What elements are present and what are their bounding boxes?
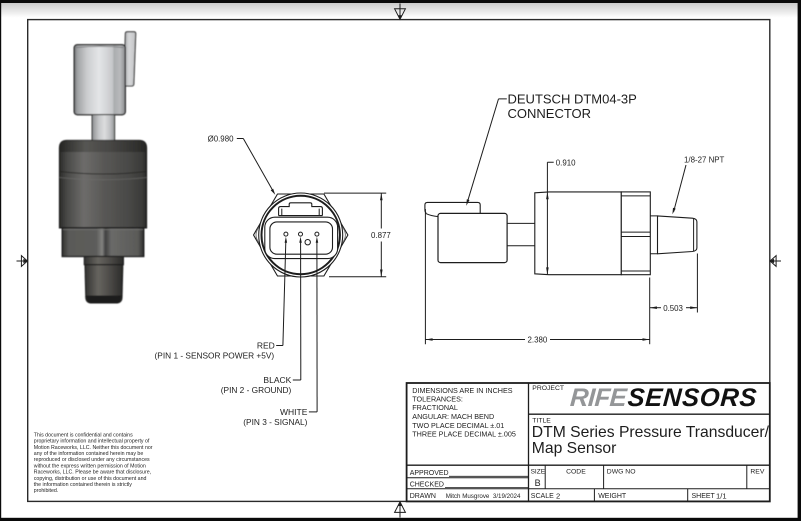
svg-text:1/1: 1/1 xyxy=(716,491,727,500)
svg-text:(PIN 3 - SIGNAL): (PIN 3 - SIGNAL) xyxy=(243,417,307,427)
svg-text:2.380: 2.380 xyxy=(528,336,548,345)
svg-text:0.910: 0.910 xyxy=(556,158,576,167)
svg-text:Map Sensor: Map Sensor xyxy=(532,440,617,457)
svg-text:DEUTSCH DTM04-3P: DEUTSCH DTM04-3P xyxy=(508,92,637,107)
svg-text:RIFE: RIFE xyxy=(569,384,628,412)
svg-text:DRAWN: DRAWN xyxy=(410,493,436,500)
svg-text:REV: REV xyxy=(750,469,764,476)
svg-text:reproduced or disclosed under: reproduced or disclosed under any circum… xyxy=(34,457,150,463)
svg-text:SCALE: SCALE xyxy=(531,493,554,500)
svg-text:WHITE: WHITE xyxy=(280,407,308,417)
svg-text:SENSORS: SENSORS xyxy=(627,384,758,412)
svg-text:BLACK: BLACK xyxy=(263,375,291,385)
svg-text:SIZE: SIZE xyxy=(531,469,546,476)
svg-text:Motion Raceworks, LLC. Neither: Motion Raceworks, LLC. Neither this docu… xyxy=(34,445,153,451)
svg-text:DTM Series Pressure Transducer: DTM Series Pressure Transducer/ xyxy=(532,424,770,441)
svg-text:PROJECT: PROJECT xyxy=(532,385,564,392)
svg-text:ANGULAR: MACH BEND: ANGULAR: MACH BEND xyxy=(412,412,494,421)
svg-text:CHECKED: CHECKED xyxy=(410,481,444,488)
svg-text:CONNECTOR: CONNECTOR xyxy=(508,106,592,121)
svg-text:3/19/2024: 3/19/2024 xyxy=(493,493,521,500)
svg-text:Mitch Musgrove: Mitch Musgrove xyxy=(446,493,490,500)
svg-text:the information contained ther: the information contained therein is str… xyxy=(34,482,132,488)
svg-text:without the express written pe: without the express written permission o… xyxy=(34,463,146,469)
svg-text:SHEET: SHEET xyxy=(692,493,716,500)
svg-text:prohibited.: prohibited. xyxy=(34,488,59,494)
svg-text:0.877: 0.877 xyxy=(371,231,391,240)
svg-text:FRACTIONAL: FRACTIONAL xyxy=(412,403,458,412)
svg-text:2: 2 xyxy=(556,491,560,500)
svg-text:copying, distribution or use o: copying, distribution or use of this doc… xyxy=(34,476,147,482)
svg-text:0.503: 0.503 xyxy=(663,304,683,313)
svg-text:RED: RED xyxy=(257,341,275,351)
svg-text:any of the information contain: any of the information contained herein … xyxy=(34,451,144,457)
svg-text:This document is confidential: This document is confidential and contai… xyxy=(34,432,133,438)
svg-text:Raceworks, LLC. Please be awar: Raceworks, LLC. Please be aware that dis… xyxy=(34,470,151,476)
svg-text:proprietary information and in: proprietary information and intellectual… xyxy=(34,439,150,445)
svg-text:THREE PLACE DECIMAL ±.005: THREE PLACE DECIMAL ±.005 xyxy=(412,430,516,439)
svg-text:B: B xyxy=(535,478,541,488)
svg-text:DWG NO: DWG NO xyxy=(607,469,636,476)
svg-text:APPROVED: APPROVED xyxy=(410,470,449,477)
svg-text:Ø0.980: Ø0.980 xyxy=(208,135,234,144)
svg-text:1/8-27 NPT: 1/8-27 NPT xyxy=(684,155,725,164)
svg-text:(PIN 2 - GROUND): (PIN 2 - GROUND) xyxy=(221,385,292,395)
svg-text:(PIN 1 - SENSOR POWER +5V): (PIN 1 - SENSOR POWER +5V) xyxy=(155,351,275,361)
svg-text:WEIGHT: WEIGHT xyxy=(598,493,627,500)
svg-text:CODE: CODE xyxy=(566,469,586,476)
